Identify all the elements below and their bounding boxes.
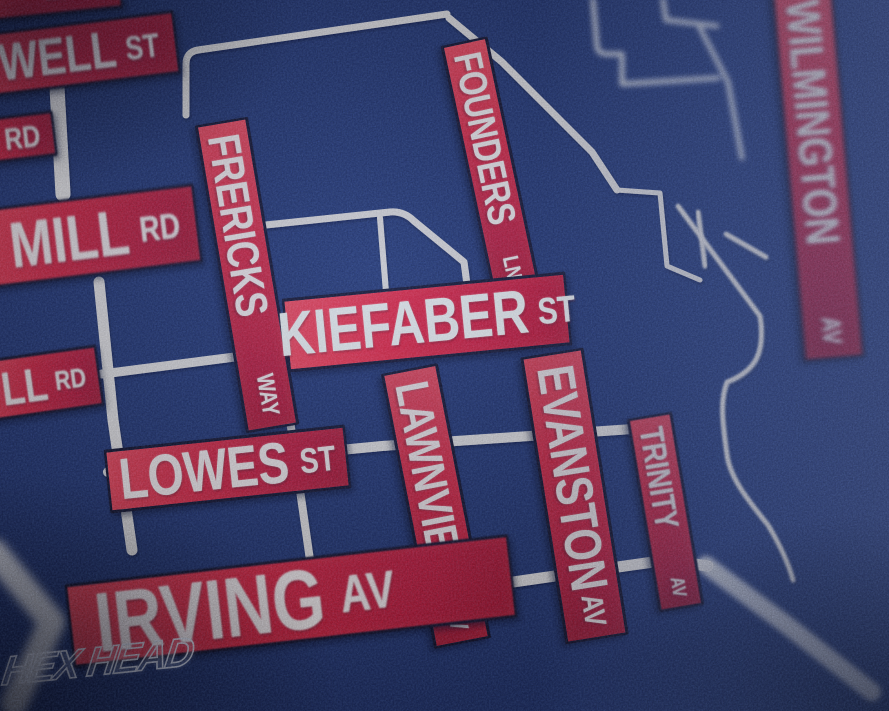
street-suffix: AV: [818, 316, 846, 346]
road-line: [700, 28, 742, 158]
road-line: [593, 0, 718, 84]
street-suffix: AV: [667, 576, 689, 599]
street-name: LL: [0, 359, 50, 412]
street-suffix: ST: [123, 28, 161, 65]
road-line: [57, 88, 63, 194]
street-suffix: RD: [3, 119, 42, 154]
road-line: [186, 14, 447, 115]
street-suffix: ST: [536, 289, 577, 329]
street-suffix: AV: [575, 592, 610, 628]
road-line: [706, 565, 872, 692]
street-suffix: RD: [138, 208, 182, 248]
road-line: [617, 190, 700, 280]
street-suffix: ST: [298, 440, 337, 479]
street-suffix: RD: [53, 364, 88, 395]
street-name: WELL: [0, 24, 119, 90]
street-suffix: AV: [337, 563, 397, 621]
road-line: [726, 234, 766, 257]
street-name: E: [40, 0, 68, 7]
road-line: [256, 212, 468, 292]
map-art-photo: E ST WELL ST RD MILL RD LL RD FRERICKS W…: [0, 0, 889, 711]
road-line: [678, 206, 793, 580]
street-suffix: WAY: [252, 372, 283, 417]
street-name: MILL: [6, 200, 132, 278]
road-line: [663, 0, 717, 26]
road-line: [380, 218, 386, 292]
